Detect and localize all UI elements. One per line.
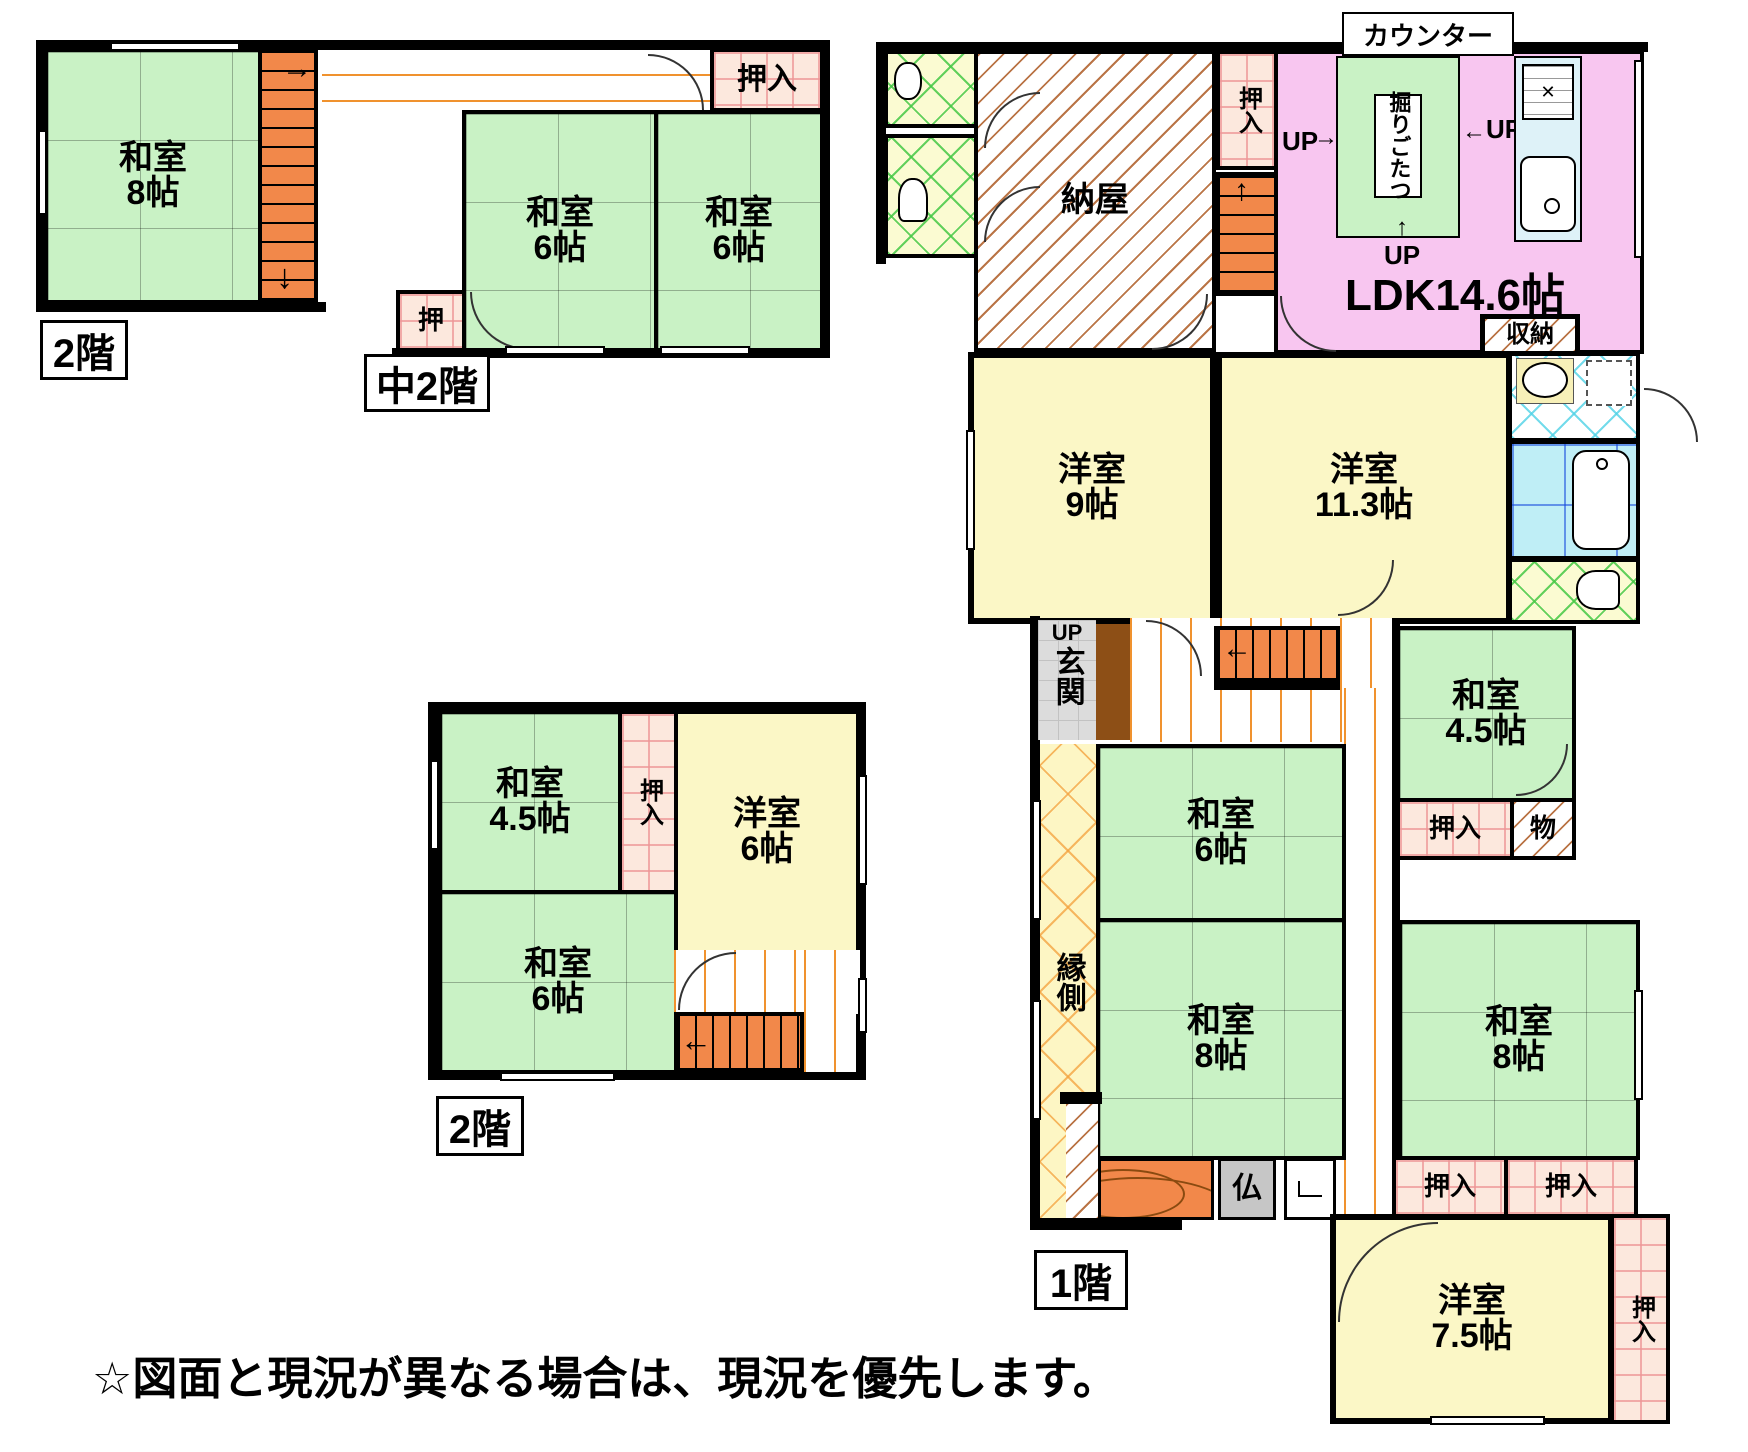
room-size: 4.5帖: [489, 802, 570, 837]
room-size: 6帖: [1195, 833, 1248, 868]
wall: [1030, 1218, 1182, 1230]
room-size: 8帖: [127, 176, 180, 211]
room-size: 8帖: [1195, 1039, 1248, 1074]
horigotatsu-label: 掘りごたつ: [1387, 91, 1410, 201]
up-arrow-right: ←: [1462, 118, 1486, 146]
room-label: 和室: [705, 196, 773, 231]
room-youshitsu-9: 洋室 9帖: [968, 352, 1216, 624]
room-washitsu-6-1f: 和室 6帖: [1096, 744, 1346, 922]
closet-oshiire-mid2f: 押入: [710, 48, 824, 112]
closet-label: 押入: [1429, 815, 1481, 842]
closet-oshiire-center-left: 押入: [1392, 1156, 1508, 1218]
window: [1634, 990, 1643, 1100]
window: [1634, 60, 1643, 258]
window: [505, 346, 605, 355]
disclaimer-note: ☆図面と現況が異なる場合は、現況を優先します。: [92, 1342, 1118, 1407]
room-label: 和室: [526, 196, 594, 231]
closet-label: 押入: [636, 778, 661, 826]
window: [110, 42, 240, 51]
floor-label-text: 2階: [53, 321, 115, 379]
room-size: 8帖: [1493, 1040, 1546, 1075]
room-size: 6帖: [534, 231, 587, 266]
room-washitsu-8-2f: 和室 8帖: [44, 48, 262, 304]
up-label-left: UP: [1282, 126, 1318, 157]
floor-label-text: 2階: [449, 1097, 511, 1155]
room-label: 洋室: [733, 797, 801, 832]
horigotatsu-box: 掘りごたつ: [1374, 94, 1422, 198]
wall: [1214, 680, 1340, 690]
stairs-up-arrow: ↑: [1234, 174, 1249, 208]
counter-box: カウンター: [1342, 12, 1514, 56]
room-youshitsu-6-2f: 洋室 6帖: [674, 710, 860, 954]
room-label: 和室: [1485, 1005, 1553, 1040]
room-washitsu-6-2f: 和室 6帖: [438, 890, 678, 1074]
window: [966, 430, 975, 550]
up-arrow-bottom: ↑: [1396, 214, 1408, 242]
window: [500, 1072, 615, 1081]
tokonoma-side-strip: [1066, 1104, 1098, 1220]
room-washitsu-6-mid2f-right: 和室 6帖: [654, 110, 824, 352]
room-washitsu-45-2f: 和室 4.5帖: [438, 710, 622, 894]
closet-oshiire-75: 押入: [1610, 1214, 1670, 1424]
room-label: 和室: [1187, 798, 1255, 833]
room-label: 納屋: [1061, 183, 1129, 218]
washbasin-icon: [1522, 362, 1568, 398]
genkan-up-label: UP: [1052, 620, 1083, 646]
bathtub-drain-icon: [1596, 458, 1608, 470]
floor-label-2f-top: 2階: [40, 320, 128, 380]
room-label: 和室: [1187, 1004, 1255, 1039]
sink-drain-icon: [1544, 198, 1560, 214]
room-label: 和室: [524, 947, 592, 982]
window: [858, 978, 867, 1033]
up-label-bottom: UP: [1384, 240, 1420, 271]
closet-oshi-mid2f: 押: [396, 290, 466, 352]
closet-oshiire-45: 押入: [1396, 798, 1514, 860]
room-label: 和室: [1452, 679, 1520, 714]
floor-plan: 和室 8帖 ↓ → 2階 押入 和室 6帖 和室 6帖 押 中2階 和室 4.5…: [0, 0, 1748, 1452]
window: [660, 346, 750, 355]
shower-area: [1586, 360, 1632, 406]
room-size: 11.3帖: [1315, 488, 1413, 523]
closet-label: 押入: [1424, 1173, 1476, 1200]
window: [858, 775, 867, 885]
engawa-label: 縁側: [1052, 952, 1083, 1012]
toilet-icon: [898, 178, 928, 222]
toilet-icon: [894, 62, 922, 100]
stairs-turn-arrow: →: [282, 52, 312, 86]
stairs-down-arrow: ↓: [276, 258, 293, 297]
genkan-label: 玄関: [1051, 646, 1082, 706]
room-label: LDK14.6帖: [1345, 273, 1565, 319]
room-size: 4.5帖: [1445, 714, 1526, 749]
butsudan: 仏: [1218, 1158, 1276, 1220]
genkan-step: [1096, 624, 1130, 740]
toilet-icon: [1576, 570, 1620, 610]
closet-label: 物: [1530, 815, 1556, 842]
up-arrow-left: →: [1314, 124, 1338, 152]
floor-label-text: 1階: [1050, 1251, 1112, 1309]
stairs-left-arrow: ←: [680, 1022, 712, 1059]
room-label: 洋室: [1058, 453, 1126, 488]
window: [38, 130, 47, 215]
closet-label: 収納: [1506, 323, 1554, 348]
room-washitsu-8-1f-right: 和室 8帖: [1398, 920, 1640, 1160]
sink-icon: [1520, 156, 1576, 232]
closet-oshiire-center-right: 押入: [1504, 1156, 1638, 1218]
toilet-room-1f: [1508, 558, 1640, 624]
door-arc: [1644, 388, 1698, 442]
corridor-1f: [1344, 688, 1394, 1220]
room-label: 洋室: [1330, 453, 1398, 488]
landing-strip-2f: [804, 950, 856, 1072]
tokonoma: [1098, 1158, 1214, 1220]
floor-label-1f: 1階: [1034, 1250, 1128, 1310]
closet-shuunou: 収納: [1480, 314, 1580, 356]
room-label: 和室: [496, 767, 564, 802]
room-washitsu-8-1f-center: 和室 8帖: [1096, 918, 1346, 1160]
window: [430, 760, 439, 850]
stove-icon: ✕: [1522, 64, 1574, 120]
window: [1032, 1000, 1041, 1120]
closet-label: 押入: [1628, 1295, 1653, 1343]
room-size: 6帖: [713, 231, 766, 266]
room-label: 洋室: [1438, 1284, 1506, 1319]
window: [1430, 1416, 1545, 1425]
floor-label-2f-bottom: 2階: [436, 1096, 524, 1156]
closet-label: 押: [418, 307, 444, 334]
window: [1032, 800, 1041, 920]
stairs-left-arrow: ←: [1222, 632, 1252, 666]
closet-label: 押入: [1545, 1173, 1597, 1200]
counter-label: カウンター: [1363, 16, 1493, 53]
floor-label-mid2f: 中2階: [364, 354, 490, 412]
room-label: 和室: [119, 141, 187, 176]
closet-mono: 物: [1510, 798, 1576, 860]
room-size: 7.5帖: [1431, 1319, 1512, 1354]
butsudan-label: 仏: [1232, 1173, 1262, 1204]
room-size: 6帖: [741, 832, 794, 867]
wall: [428, 702, 438, 1080]
room-size: 9帖: [1066, 488, 1119, 523]
floor-label-text: 中2階: [376, 354, 478, 412]
room-size: 6帖: [532, 982, 585, 1017]
genkan: UP 玄関: [1038, 620, 1096, 740]
closet-oshiire-1f-stairs: 押入: [1216, 50, 1278, 170]
closet-label: 押入: [1235, 86, 1260, 134]
closet-label: 押入: [737, 64, 797, 95]
alcove-step: [1284, 1158, 1336, 1220]
wall: [1060, 1092, 1102, 1104]
closet-oshiire-2f: 押入: [618, 710, 678, 894]
